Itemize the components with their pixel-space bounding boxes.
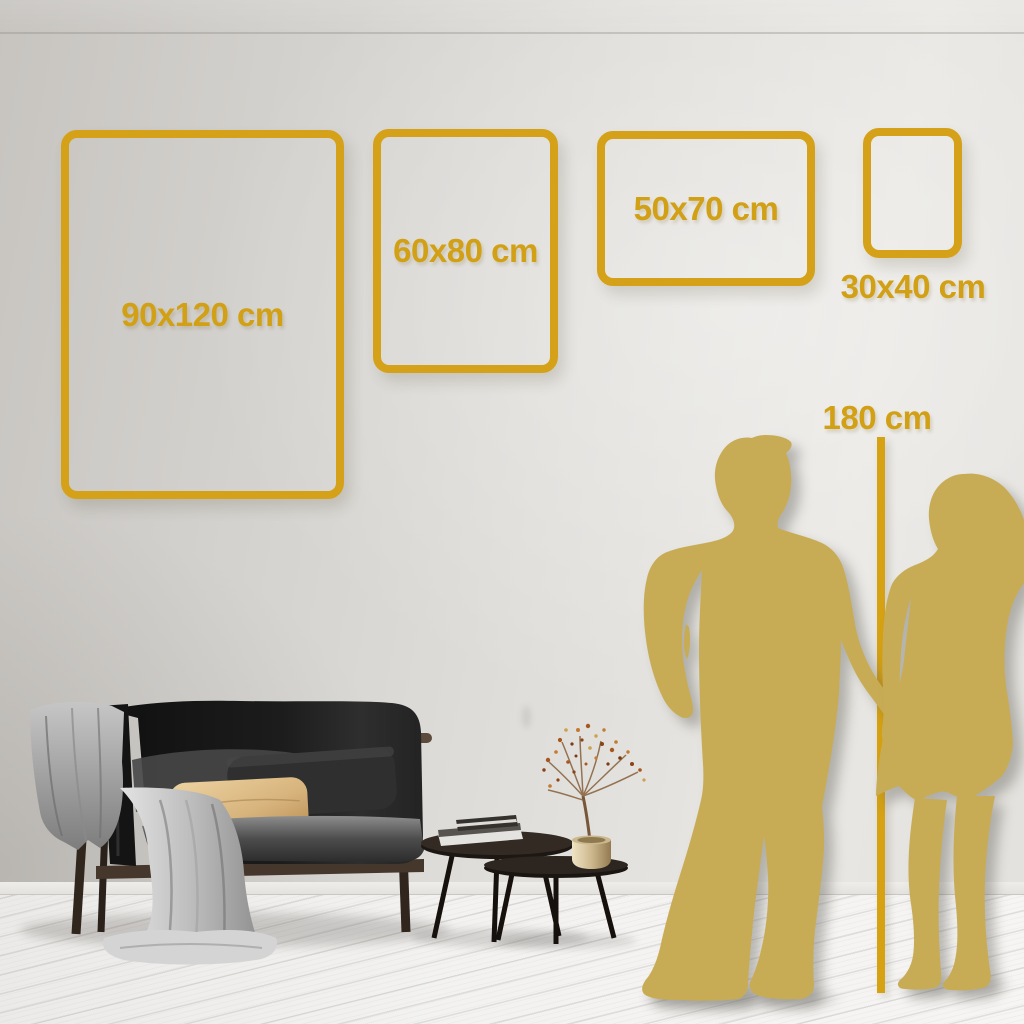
tall-table	[421, 831, 573, 942]
size-frame-90x120-label: 90x120 cm	[121, 296, 283, 334]
couple-silhouette	[600, 400, 1024, 1024]
size-frame-90x120: 90x120 cm	[61, 130, 344, 499]
size-frame-60x80: 60x80 cm	[373, 129, 558, 373]
size-frame-30x40-label-wrap: 30x40 cm	[828, 268, 998, 306]
size-frame-30x40-label: 30x40 cm	[841, 268, 986, 305]
poster-size-guide-scene: 90x120 cm 60x80 cm 50x70 cm 30x40 cm 180…	[0, 0, 1024, 1024]
size-frame-50x70-label: 50x70 cm	[634, 190, 779, 228]
size-frame-30x40	[863, 128, 962, 258]
sofa-illustration	[0, 660, 480, 1005]
man-silhouette	[642, 435, 904, 1001]
size-frame-50x70: 50x70 cm	[597, 131, 815, 286]
woman-silhouette	[876, 474, 1024, 991]
ceiling-seam	[0, 0, 1024, 34]
size-frame-60x80-label: 60x80 cm	[393, 232, 538, 270]
